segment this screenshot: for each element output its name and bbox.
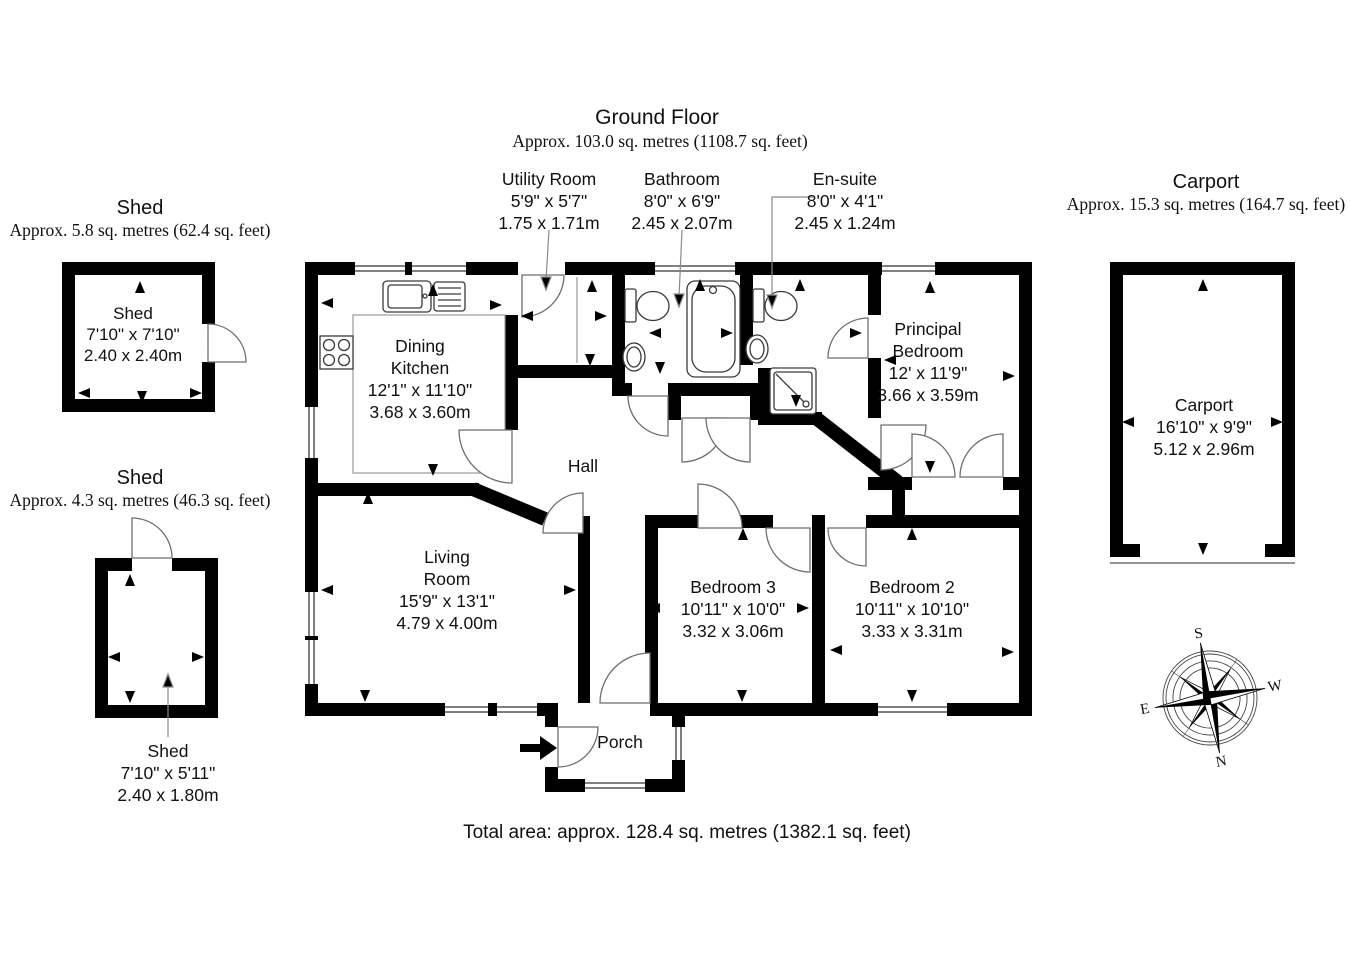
total-area-label: Total area: approx. 128.4 sq. metres (13… (463, 822, 911, 844)
living-room-label: Living Room 15'9" x 13'1" 4.79 x 4.00m (396, 546, 497, 634)
ground-floor-title: Ground Floor (595, 106, 719, 130)
compass-north-label: N (1215, 753, 1229, 771)
porch-label: Porch (597, 731, 643, 753)
dining-kitchen-label: Dining Kitchen 12'1" x 11'10" 3.68 x 3.6… (368, 335, 472, 423)
shed1-label: Shed 7'10" x 7'10" 2.40 x 2.40m (84, 303, 182, 366)
hall-label: Hall (568, 455, 598, 477)
compass-rose-icon: N S E W (1128, 613, 1296, 782)
bathtub-icon (687, 281, 740, 377)
shed2-walls (95, 558, 218, 718)
hob-icon (320, 336, 353, 369)
utility-room-label: Utility Room 5'9" x 5'7" 1.75 x 1.71m (498, 168, 599, 234)
carport-title: Carport (1173, 170, 1240, 194)
shed1-door-arc (208, 324, 246, 362)
shed1-title: Shed (117, 196, 164, 220)
compass-east-label: E (1139, 701, 1151, 718)
floorplan-page: N S E W Ground Floor Approx. 103.0 sq. m… (0, 0, 1350, 954)
bathroom-toilet-icon (625, 289, 669, 322)
ensuite-toilet-icon (753, 289, 797, 322)
carport-label: Carport 16'10" x 9'9" 5.12 x 2.96m (1153, 394, 1254, 460)
ensuite-basin-icon (746, 335, 768, 363)
shed2-label: Shed 7'10" x 5'11" 2.40 x 1.80m (117, 740, 218, 806)
shed1-area: Approx. 5.8 sq. metres (62.4 sq. feet) (10, 220, 271, 241)
bedroom2-label: Bedroom 2 10'11" x 10'10" 3.33 x 3.31m (855, 576, 969, 642)
kitchen-sink-icon (383, 281, 465, 312)
ensuite-label: En-suite 8'0" x 4'1" 2.45 x 1.24m (794, 168, 895, 234)
bedroom3-label: Bedroom 3 10'11" x 10'0" 3.32 x 3.06m (681, 576, 785, 642)
carport-area: Approx. 15.3 sq. metres (164.7 sq. feet) (1067, 194, 1346, 215)
compass-south-label: S (1193, 625, 1204, 642)
compass-west-label: W (1267, 677, 1285, 695)
shower-icon (770, 368, 816, 414)
bathroom-basin-icon (623, 343, 645, 371)
principal-bedroom-label: Principal Bedroom 12' x 11'9" 3.66 x 3.5… (877, 318, 978, 406)
ground-floor-area: Approx. 103.0 sq. metres (1108.7 sq. fee… (512, 131, 807, 152)
shed2-door-arc (132, 518, 172, 558)
shed2-title: Shed (117, 466, 164, 490)
bathroom-label: Bathroom 8'0" x 6'9" 2.45 x 2.07m (631, 168, 732, 234)
shed2-area: Approx. 4.3 sq. metres (46.3 sq. feet) (10, 490, 271, 511)
